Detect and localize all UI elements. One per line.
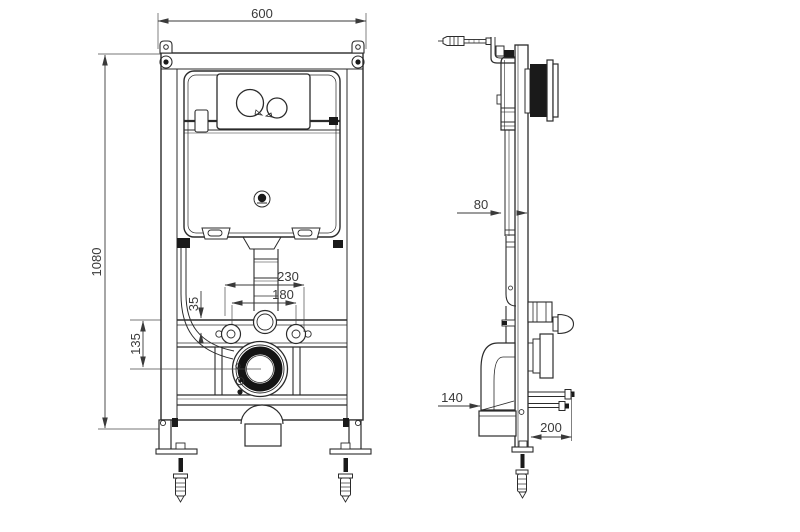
side-tank [497, 57, 516, 343]
left-leg-foot [156, 418, 197, 502]
left-valve-block [195, 110, 208, 132]
flush-access-drum [525, 60, 558, 121]
side-outlet-spigot [528, 334, 553, 378]
pan-connector [241, 405, 283, 446]
flush-pipe-flange [254, 311, 277, 334]
technical-drawing-page: 600 1080 [0, 0, 800, 532]
dim-outlet-drop: 135 [128, 320, 161, 367]
floor-anchor-screw [516, 454, 528, 498]
dim-label-230: 230 [277, 269, 299, 284]
flush-button-small [267, 98, 287, 118]
dim-label-35: 35 [186, 297, 201, 311]
dim-label-180: 180 [272, 287, 294, 302]
front-view: 600 1080 [89, 6, 371, 502]
dim-label-80: 80 [474, 197, 488, 212]
dim-label-1080: 1080 [89, 248, 104, 277]
side-bolt-fittings [502, 302, 574, 334]
dim-label-600: 600 [251, 6, 273, 21]
dim-frame-height: 1080 [89, 54, 163, 429]
threaded-rods [528, 390, 575, 411]
dim-base-span: 200 [531, 393, 572, 441]
drain-elbow [479, 343, 516, 436]
dim-bend-reach: 140 [438, 390, 480, 406]
side-foot [512, 441, 533, 498]
dim-label-140: 140 [441, 390, 463, 405]
technical-drawing: 600 1080 [0, 0, 800, 532]
wall-plug-icon [443, 37, 464, 46]
inlet-connector [177, 238, 190, 248]
side-view: 80 1 [438, 37, 575, 499]
bolt-cap-icon [558, 315, 574, 334]
dim-label-200: 200 [540, 420, 562, 435]
dim-frame-width: 600 [158, 6, 366, 49]
right-rod-block [329, 117, 338, 125]
left-anchor-screw [174, 458, 188, 502]
right-anchor-screw [339, 458, 353, 502]
right-leg-foot [330, 418, 371, 502]
dim-label-135: 135 [128, 333, 143, 355]
side-connector [333, 240, 343, 248]
